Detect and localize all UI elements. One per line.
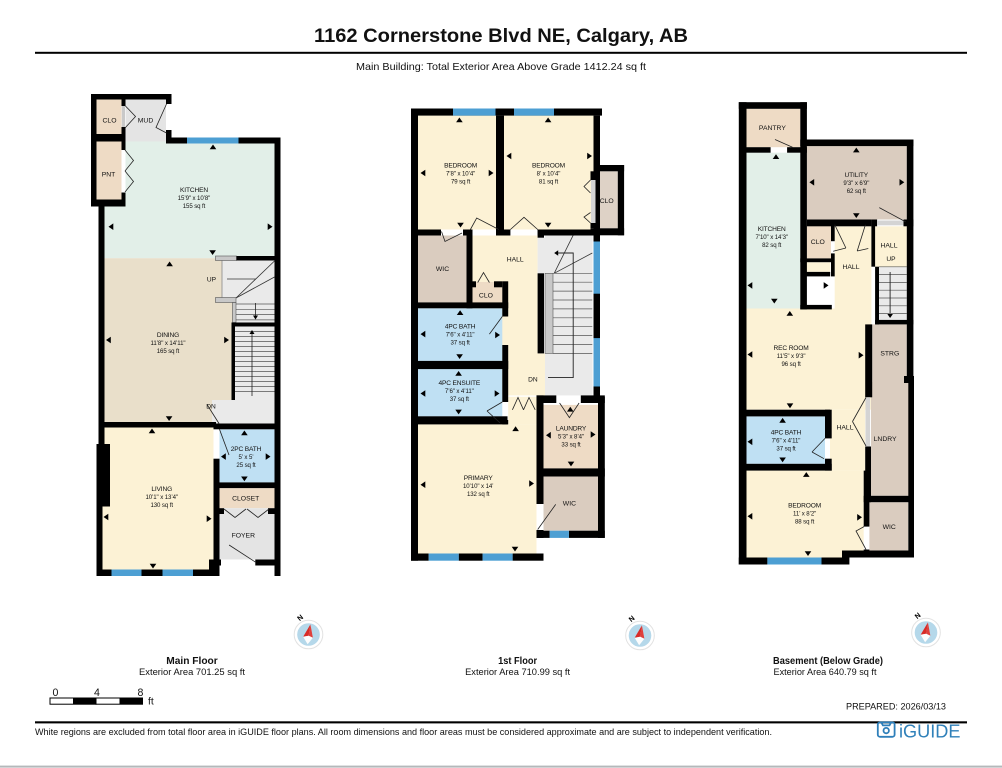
svg-text:79 sq ft: 79 sq ft	[451, 179, 471, 186]
svg-text:CLO: CLO	[103, 118, 117, 125]
svg-text:HALL: HALL	[842, 264, 859, 271]
svg-text:UP: UP	[207, 277, 217, 284]
svg-text:HALL: HALL	[507, 257, 524, 264]
svg-text:CLO: CLO	[600, 198, 614, 205]
svg-text:4: 4	[94, 687, 100, 699]
svg-text:11’5" x 9’3": 11’5" x 9’3"	[777, 353, 806, 360]
svg-text:PREPARED: 2026/03/13: PREPARED: 2026/03/13	[846, 702, 946, 713]
svg-text:PRIMARY: PRIMARY	[464, 475, 494, 482]
svg-text:96 sq ft: 96 sq ft	[782, 361, 802, 368]
svg-text:37 sq ft: 37 sq ft	[776, 446, 796, 453]
svg-text:25 sq ft: 25 sq ft	[236, 462, 256, 469]
svg-text:1162 Cornerstone Blvd NE, Calg: 1162 Cornerstone Blvd NE, Calgary, AB	[314, 25, 688, 47]
svg-text:MUD: MUD	[138, 118, 154, 125]
svg-text:HALL: HALL	[836, 425, 853, 432]
svg-text:4PC BATH: 4PC BATH	[445, 324, 476, 331]
svg-text:KITCHEN: KITCHEN	[180, 187, 208, 194]
svg-text:11’ x 8’2": 11’ x 8’2"	[793, 510, 816, 517]
svg-text:CLO: CLO	[479, 293, 493, 300]
svg-text:130 sq ft: 130 sq ft	[150, 502, 173, 509]
svg-text:UP: UP	[886, 256, 896, 263]
svg-text:PNT: PNT	[102, 172, 116, 179]
svg-text:37 sq ft: 37 sq ft	[450, 396, 470, 403]
svg-text:5’ x 5’: 5’ x 5’	[239, 454, 254, 461]
svg-text:7’10" x 14’3": 7’10" x 14’3"	[755, 234, 788, 241]
svg-text:PANTRY: PANTRY	[759, 125, 786, 132]
svg-text:LNDRY: LNDRY	[874, 436, 897, 443]
svg-text:88 sq ft: 88 sq ft	[795, 518, 815, 525]
svg-text:LAUNDRY: LAUNDRY	[556, 425, 587, 432]
svg-text:DINING: DINING	[157, 332, 179, 339]
svg-text:37 sq ft: 37 sq ft	[451, 340, 471, 347]
svg-text:5’3" x 8’4": 5’3" x 8’4"	[558, 433, 584, 440]
svg-text:81 sq ft: 81 sq ft	[539, 179, 559, 186]
svg-text:Exterior Area 640.79 sq ft: Exterior Area 640.79 sq ft	[774, 666, 877, 677]
svg-text:7’6" x 4’11": 7’6" x 4’11"	[772, 438, 801, 445]
svg-text:7’6" x 4’11": 7’6" x 4’11"	[446, 332, 475, 339]
svg-text:BEDROOM: BEDROOM	[788, 502, 821, 509]
svg-text:REC ROOM: REC ROOM	[774, 345, 809, 352]
svg-text:4PC BATH: 4PC BATH	[771, 430, 802, 437]
svg-text:UTILITY: UTILITY	[845, 172, 869, 179]
svg-text:BEDROOM: BEDROOM	[444, 163, 477, 170]
svg-text:0: 0	[53, 687, 59, 699]
svg-text:8: 8	[138, 687, 144, 699]
svg-text:WIC: WIC	[436, 266, 449, 273]
svg-text:165 sq ft: 165 sq ft	[157, 348, 180, 355]
svg-text:7’8" x 10’4": 7’8" x 10’4"	[446, 171, 475, 178]
svg-text:62 sq ft: 62 sq ft	[847, 188, 867, 195]
svg-text:WIC: WIC	[883, 524, 896, 531]
svg-text:10’1" x 13’4": 10’1" x 13’4"	[145, 494, 178, 501]
svg-text:Exterior Area 701.25 sq ft: Exterior Area 701.25 sq ft	[139, 666, 245, 677]
svg-text:10’10" x 14’: 10’10" x 14’	[463, 483, 493, 490]
svg-text:HALL: HALL	[880, 243, 897, 250]
svg-text:STRG: STRG	[880, 351, 899, 358]
svg-text:CLO: CLO	[811, 239, 825, 246]
svg-text:15’9" x 10’8": 15’9" x 10’8"	[178, 195, 211, 202]
svg-text:Exterior Area 710.99 sq ft: Exterior Area 710.99 sq ft	[465, 666, 570, 677]
svg-text:155 sq ft: 155 sq ft	[183, 203, 206, 210]
svg-text:2PC BATH: 2PC BATH	[231, 446, 262, 453]
svg-text:4PC ENSUITE: 4PC ENSUITE	[439, 380, 481, 387]
svg-text:82 sq ft: 82 sq ft	[762, 242, 782, 249]
svg-text:BEDROOM: BEDROOM	[532, 163, 565, 170]
svg-text:9’3" x 6’9": 9’3" x 6’9"	[843, 180, 869, 187]
svg-text:WIC: WIC	[563, 501, 576, 508]
svg-text:11’8" x 14’11": 11’8" x 14’11"	[151, 340, 186, 347]
svg-text:DN: DN	[528, 377, 538, 384]
svg-text:Main Building: Total Exterior: Main Building: Total Exterior Area Above…	[356, 62, 646, 73]
svg-text:33 sq ft: 33 sq ft	[561, 441, 581, 448]
svg-text:FOYER: FOYER	[232, 533, 256, 540]
svg-text:KITCHEN: KITCHEN	[758, 226, 786, 233]
svg-text:ft: ft	[148, 697, 154, 708]
svg-text:132 sq ft: 132 sq ft	[467, 491, 490, 498]
svg-text:DN: DN	[206, 404, 216, 411]
svg-text:iGUIDE: iGUIDE	[899, 722, 961, 742]
svg-text:White regions are excluded fro: White regions are excluded from total fl…	[35, 727, 772, 737]
svg-text:8’ x 10’4": 8’ x 10’4"	[537, 171, 561, 178]
svg-text:CLOSET: CLOSET	[232, 496, 259, 503]
svg-text:LIVING: LIVING	[151, 486, 172, 493]
svg-text:7’6" x 4’11": 7’6" x 4’11"	[445, 388, 474, 395]
